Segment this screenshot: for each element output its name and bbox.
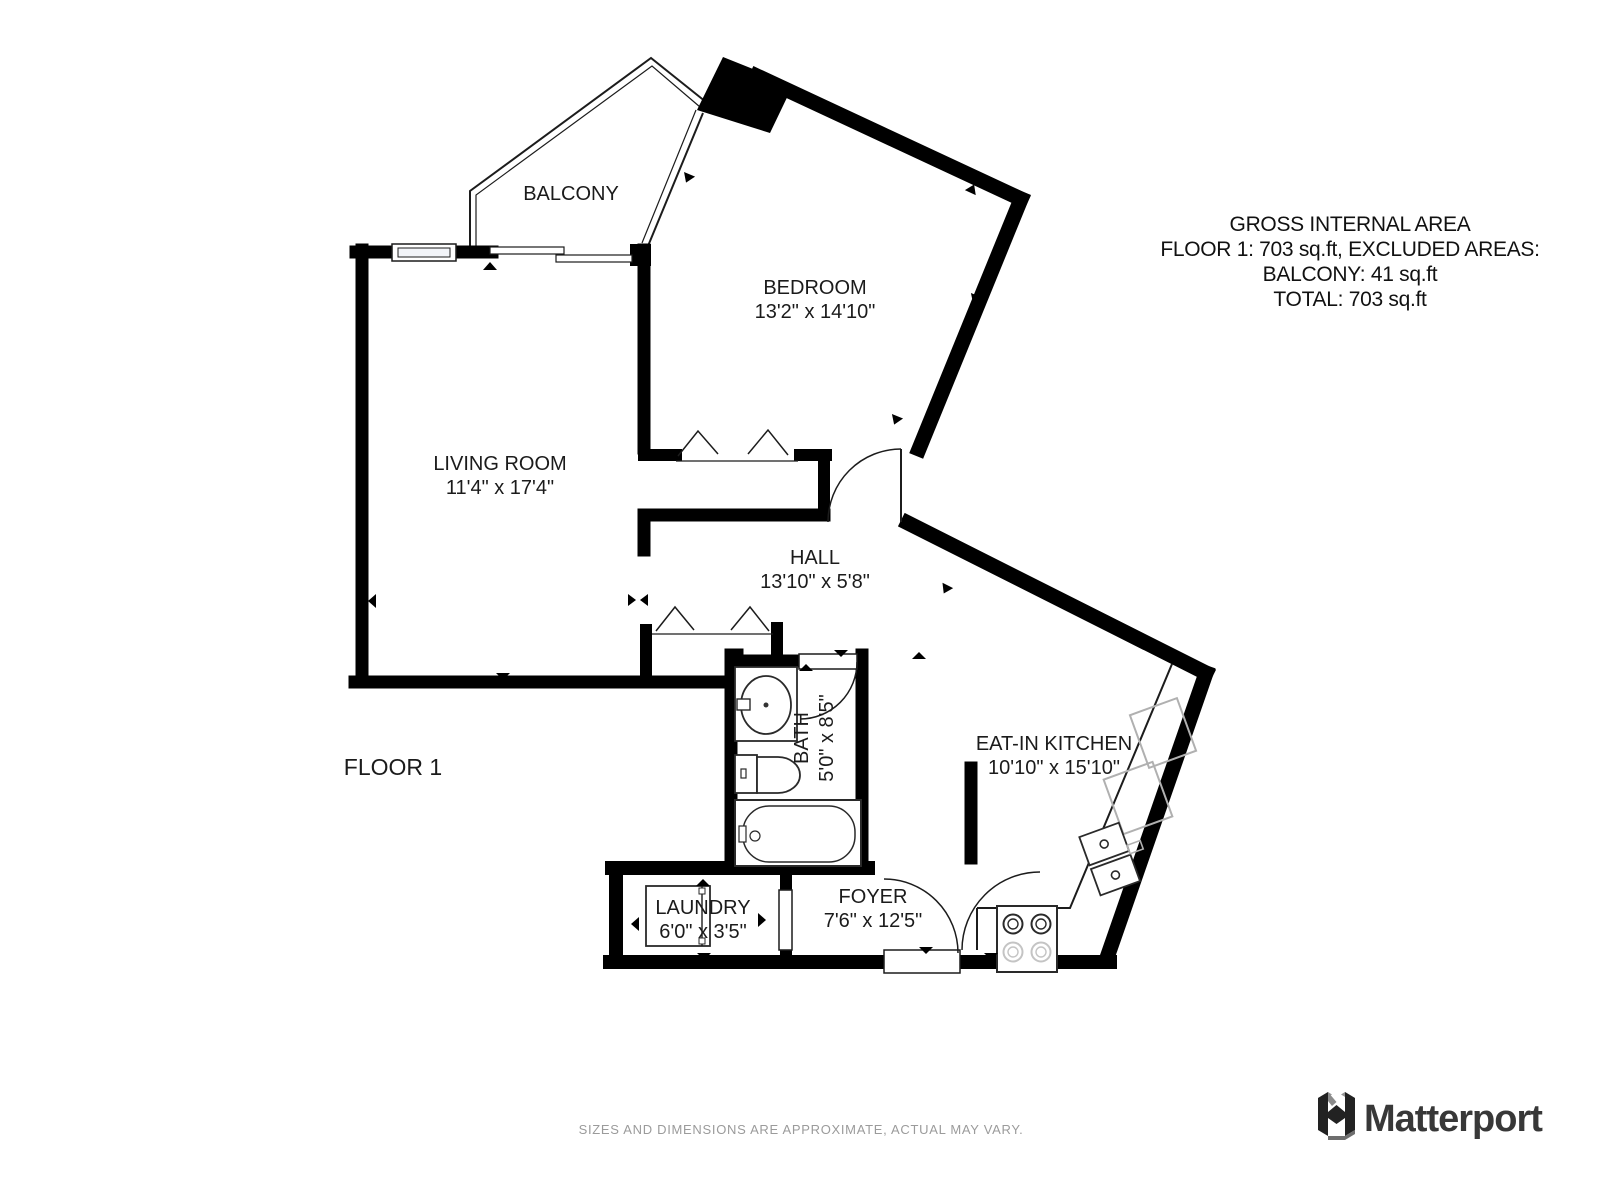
disclaimer-text: SIZES AND DIMENSIONS ARE APPROXIMATE, AC… bbox=[579, 1122, 1024, 1137]
closet-rod-icon bbox=[656, 607, 694, 631]
floor-label: FLOOR 1 bbox=[344, 754, 442, 780]
closet-rod-icon bbox=[731, 607, 769, 631]
room-label-living-room: LIVING ROOM 11'4" x 17'4" bbox=[433, 453, 566, 499]
svg-text:11'4" x 17'4": 11'4" x 17'4" bbox=[446, 477, 554, 499]
svg-text:FLOOR 1: 703 sq.ft, EXCLUDED A: FLOOR 1: 703 sq.ft, EXCLUDED AREAS: bbox=[1160, 238, 1539, 261]
floor-plan-page: BALCONY BEDROOM 13'2" x 14'10" LIVING RO… bbox=[0, 0, 1600, 1200]
balcony-railing bbox=[470, 58, 706, 252]
dimension-arrows bbox=[368, 172, 998, 960]
room-label-hall: HALL 13'10" x 5'8" bbox=[760, 547, 870, 593]
matterport-logo: Matterport bbox=[1318, 1092, 1543, 1140]
svg-text:HALL: HALL bbox=[790, 547, 840, 569]
room-label-eat-in-kitchen: EAT-IN KITCHEN 10'10" x 15'10" bbox=[976, 733, 1132, 779]
svg-text:GROSS INTERNAL AREA: GROSS INTERNAL AREA bbox=[1230, 213, 1471, 236]
svg-text:FOYER: FOYER bbox=[839, 886, 908, 908]
svg-text:13'2" x 14'10": 13'2" x 14'10" bbox=[755, 301, 876, 323]
wall-corner-block bbox=[697, 57, 793, 133]
svg-text:LIVING ROOM: LIVING ROOM bbox=[433, 453, 566, 475]
bath-fixtures bbox=[735, 667, 861, 866]
closet-rod-icon bbox=[678, 431, 718, 456]
brand-name: Matterport bbox=[1364, 1098, 1543, 1140]
bedroom-door-arc bbox=[828, 449, 901, 522]
svg-text:BALCONY: BALCONY bbox=[523, 183, 619, 205]
svg-text:BATH: BATH bbox=[791, 712, 813, 764]
area-summary: GROSS INTERNAL AREA FLOOR 1: 703 sq.ft, … bbox=[1160, 213, 1539, 311]
windows bbox=[392, 244, 632, 262]
svg-text:BALCONY: 41 sq.ft: BALCONY: 41 sq.ft bbox=[1263, 263, 1438, 286]
closet-rod-icon bbox=[748, 430, 788, 455]
svg-text:TOTAL: 703 sq.ft: TOTAL: 703 sq.ft bbox=[1273, 288, 1427, 311]
sliding-door-icon bbox=[490, 247, 564, 254]
matterport-logo-icon bbox=[1318, 1092, 1355, 1140]
balcony-slider-icon bbox=[648, 113, 703, 246]
stove-icon bbox=[997, 906, 1057, 972]
floor-plan-svg: BALCONY BEDROOM 13'2" x 14'10" LIVING RO… bbox=[0, 0, 1600, 1200]
svg-text:6'0" x 3'5": 6'0" x 3'5" bbox=[659, 921, 746, 943]
svg-text:10'10" x 15'10": 10'10" x 15'10" bbox=[988, 757, 1120, 779]
svg-text:13'10" x 5'8": 13'10" x 5'8" bbox=[760, 571, 870, 593]
svg-text:7'6" x 12'5": 7'6" x 12'5" bbox=[824, 910, 923, 932]
svg-text:EAT-IN KITCHEN: EAT-IN KITCHEN bbox=[976, 733, 1132, 755]
wall-post bbox=[630, 244, 651, 266]
entry-door-leaf bbox=[884, 950, 960, 973]
laundry-door-leaf bbox=[779, 890, 792, 950]
room-label-foyer: FOYER 7'6" x 12'5" bbox=[824, 886, 923, 932]
room-label-bedroom: BEDROOM 13'2" x 14'10" bbox=[755, 277, 876, 323]
svg-text:LAUNDRY: LAUNDRY bbox=[655, 897, 750, 919]
room-label-balcony: BALCONY bbox=[523, 183, 619, 205]
svg-text:BEDROOM: BEDROOM bbox=[763, 277, 866, 299]
svg-text:5'0" x 8'5": 5'0" x 8'5" bbox=[816, 694, 838, 781]
